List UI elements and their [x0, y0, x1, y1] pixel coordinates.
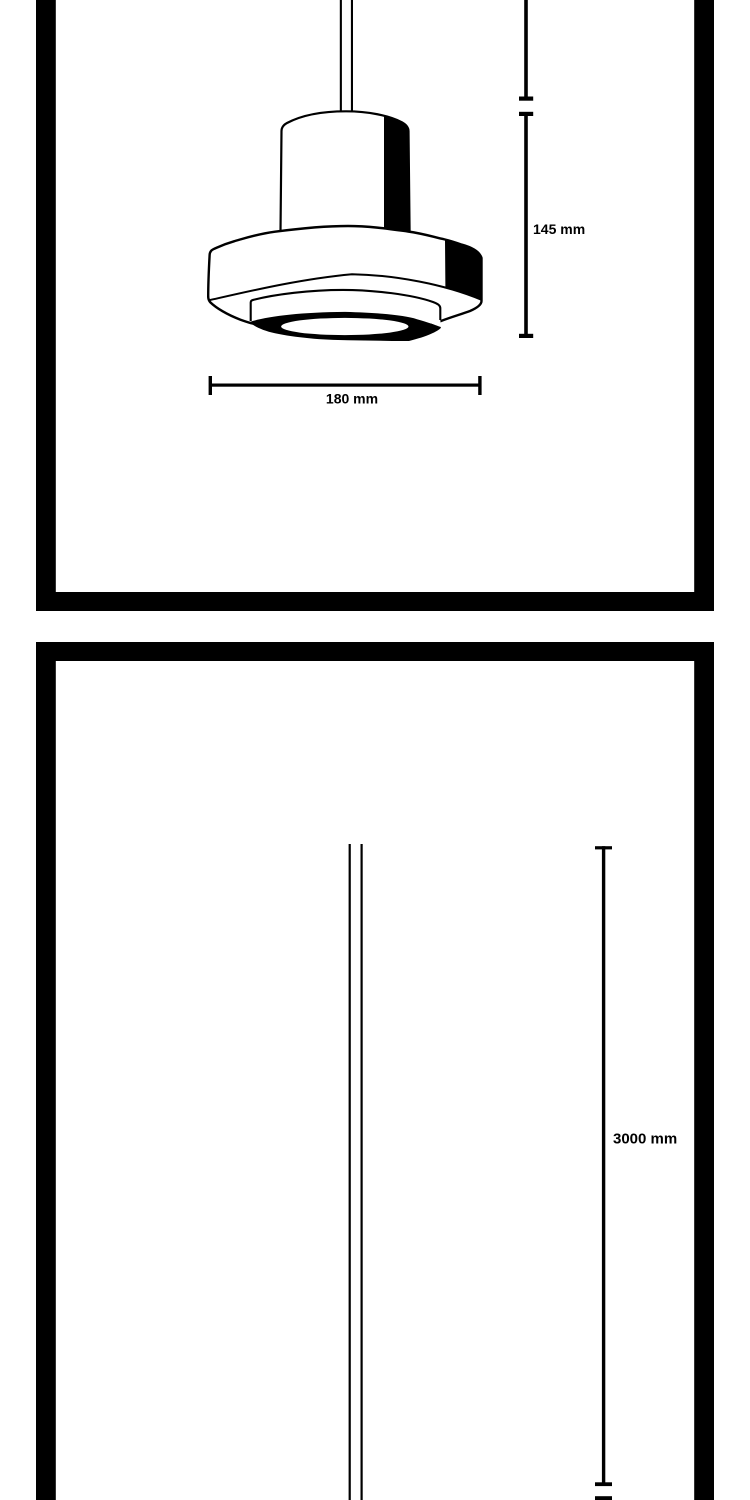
svg-text:145 mm: 145 mm: [533, 221, 585, 237]
svg-text:3000 mm: 3000 mm: [613, 1131, 677, 1148]
svg-text:180 mm: 180 mm: [326, 391, 378, 407]
